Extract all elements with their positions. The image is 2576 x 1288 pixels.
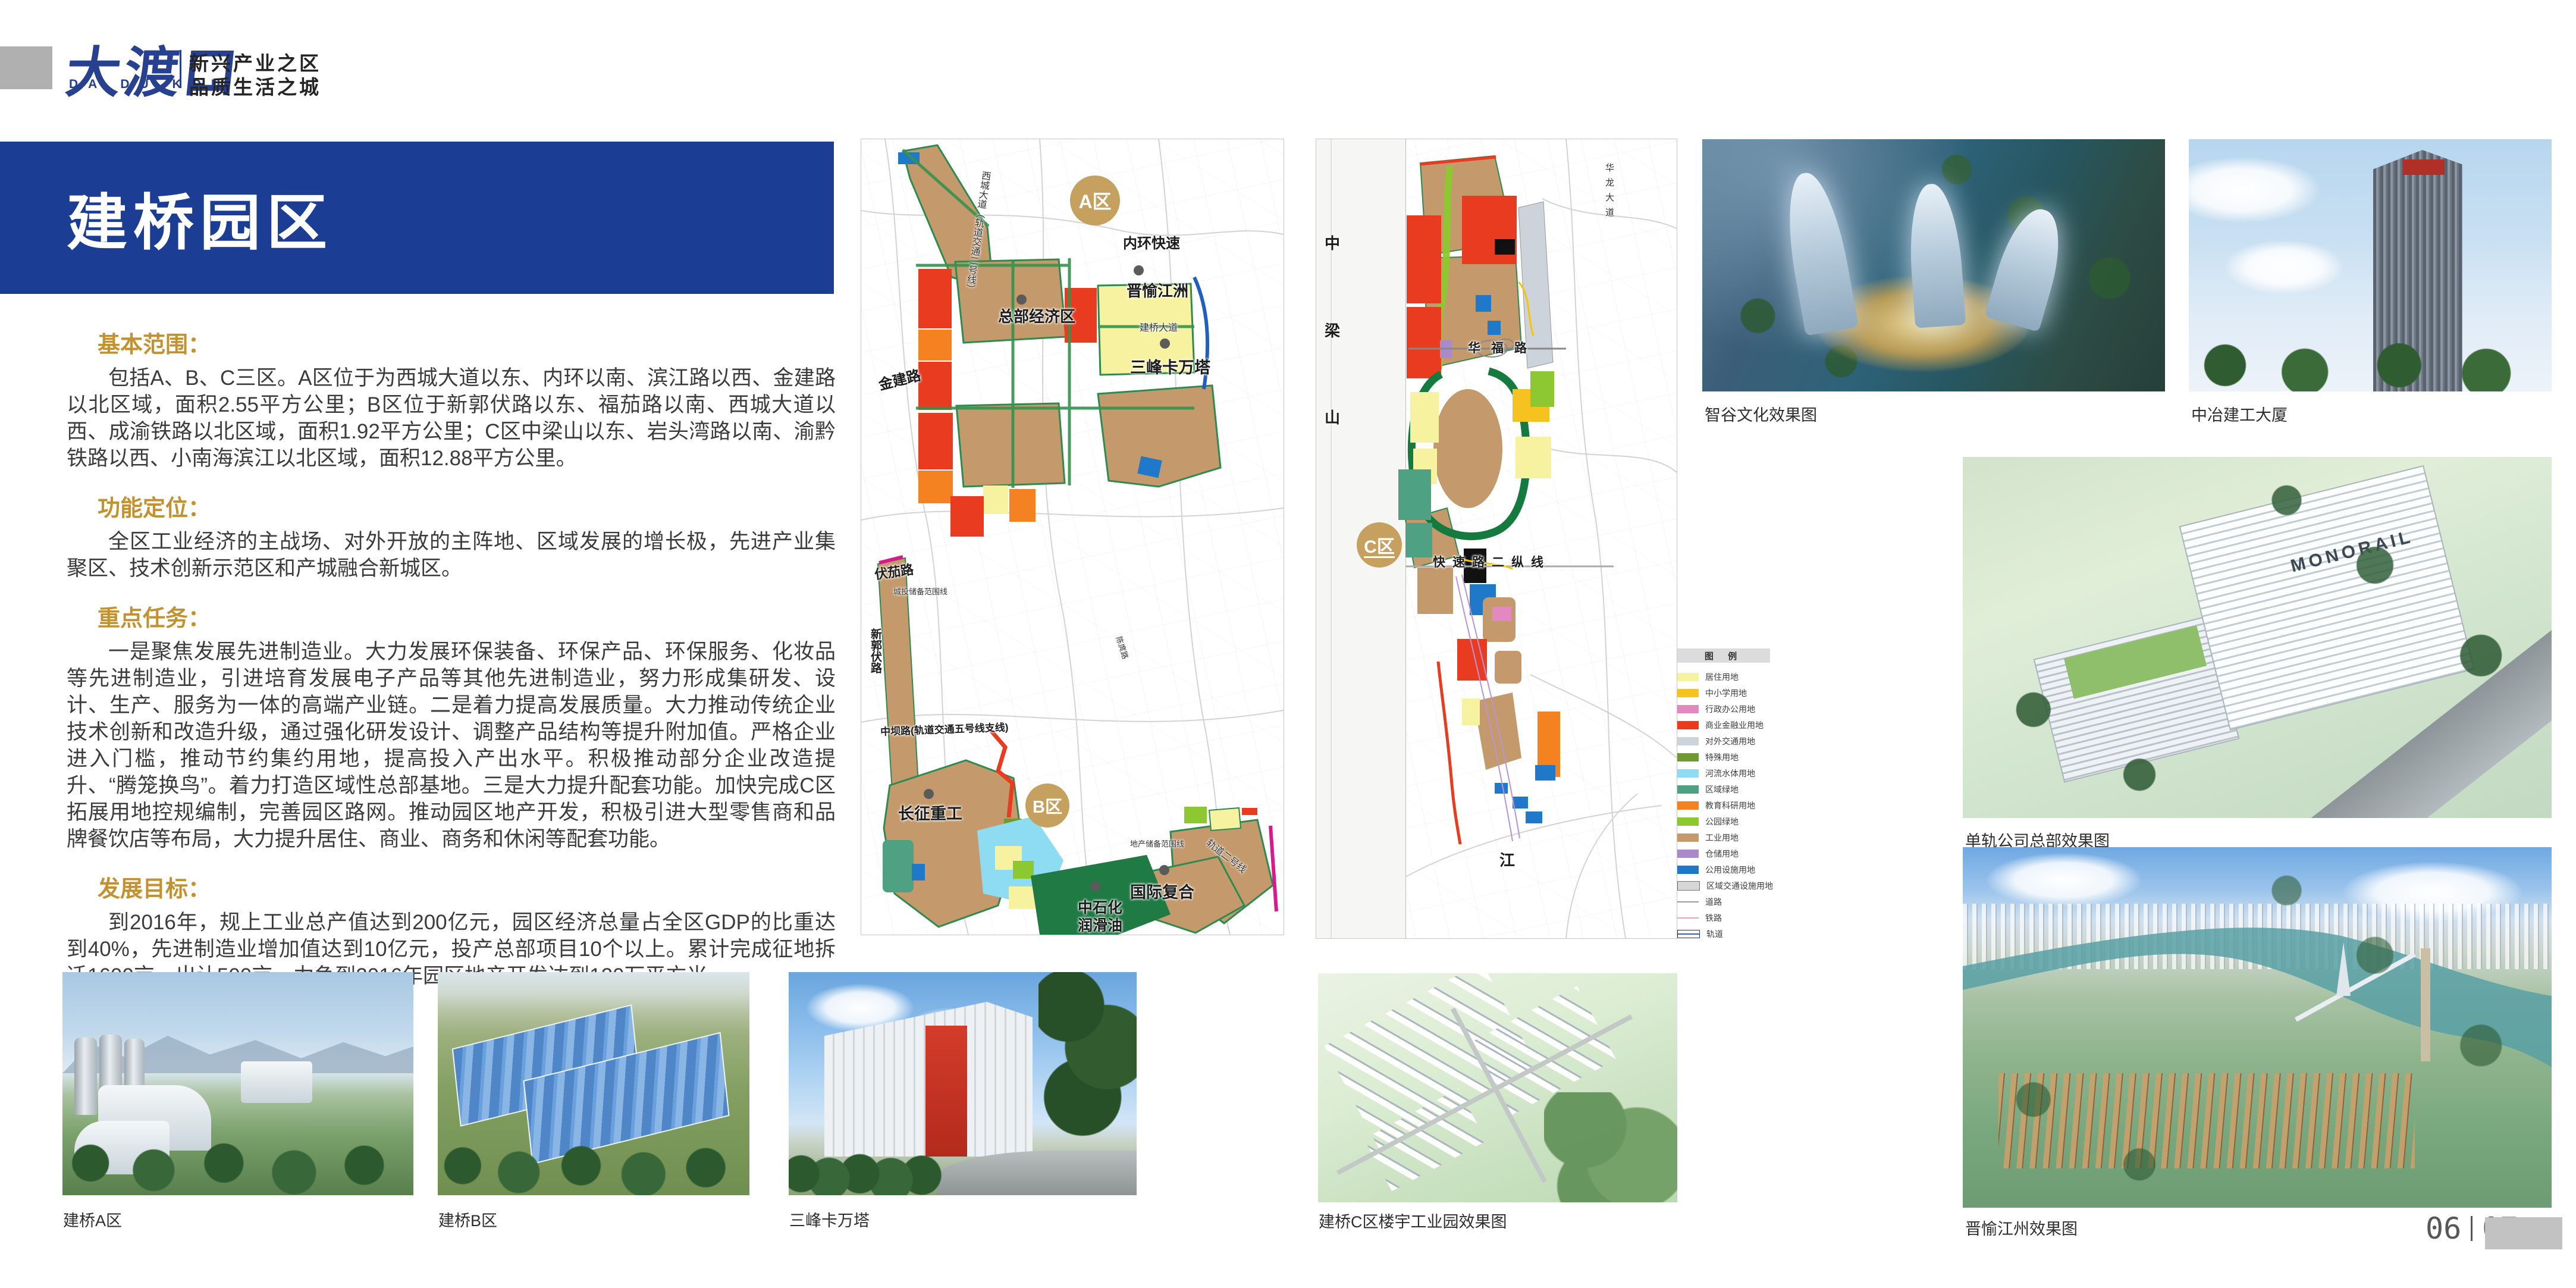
photo-trees [62, 1124, 413, 1195]
legend-swatch [1677, 866, 1699, 874]
legend-item-admin: 行政办公用地 [1677, 701, 1793, 717]
map-label-liang: 梁 [1325, 319, 1340, 341]
map-label-huafulu: 华福路 [1468, 339, 1538, 356]
section-heading-tasks: 重点任务： [98, 600, 836, 632]
caption-zone-c-park: 建桥C区楼宇工业园效果图 [1319, 1209, 1507, 1232]
legend-swatch [1677, 833, 1699, 842]
photo-silo [74, 1038, 97, 1115]
photo-forest [1544, 1092, 1677, 1202]
map-label-shan: 山 [1325, 406, 1340, 428]
map-label-chengtou-line: 城投储备范围线 [893, 585, 947, 597]
map-badge-zone-c: C区 [1357, 522, 1402, 568]
photo-trees [1963, 847, 2552, 1208]
legend-label: 行政办公用地 [1705, 703, 1755, 715]
photo-cloud [2224, 240, 2343, 294]
legend-swatch [1677, 850, 1699, 858]
legend-road-line [1677, 901, 1699, 902]
legend-item-railway: 铁路 [1677, 910, 1793, 926]
legend-item-utility: 公用设施用地 [1677, 861, 1793, 878]
caption-zhongye: 中冶建工大厦 [2191, 402, 2288, 425]
map-label-sanfeng: 三峰卡万塔 [1130, 355, 1210, 378]
map-dot-zhongshihua [1090, 881, 1100, 891]
legend-label: 对外交通用地 [1705, 735, 1755, 747]
legend-swatch [1677, 689, 1699, 697]
page-title: 建桥园区 [67, 174, 333, 262]
map-c-zone: 中 梁 山 华龙大道 华福路 C区 快速路二纵线 江 [1316, 139, 1677, 939]
map-label-guoji: 国际复合 [1130, 879, 1194, 902]
photo-trees [438, 1130, 749, 1195]
section-heading-goals: 发展目标： [98, 870, 836, 903]
legend-swatch [1677, 769, 1699, 778]
map-label-zhongshihua-2: 润滑油 [1078, 914, 1122, 935]
map-badge-zone-a: A区 [1070, 176, 1120, 225]
decor-gray-block [2485, 1217, 2562, 1249]
photo-building [241, 1061, 312, 1103]
legend-label: 教育科研用地 [1705, 800, 1755, 811]
legend-title: 图 例 [1677, 648, 1770, 663]
legend-swatch [1677, 881, 1700, 891]
photo-red-panel [925, 1026, 967, 1157]
map-legend: 图 例 居住用地 中小学用地 行政办公用地 商业金融业用地 对外交通用地 特殊用… [1677, 648, 1793, 942]
map-label-changzheng: 长征重工 [898, 801, 962, 824]
legend-label: 区域绿地 [1705, 784, 1739, 795]
photo-zone-c-park [1318, 973, 1677, 1202]
brochure-page: 大渡口 DA DU KOU 新兴产业之区 品质生活之城 建桥园区 基本范围： 包… [0, 0, 2576, 1288]
legend-item-track: 轨道 [1677, 926, 1793, 942]
photo-monorail-hq: MONORAIL [1963, 457, 2552, 818]
map-badge-zone-b: B区 [1025, 784, 1069, 828]
logo-divider [180, 50, 181, 88]
legend-item-school: 中小学用地 [1677, 685, 1793, 701]
map-label-jianqiao-dadao: 建桥大道 [1140, 319, 1178, 334]
photo-zone-a [62, 972, 413, 1195]
legend-item-park: 公园绿地 [1677, 813, 1793, 829]
section-heading-function: 功能定位： [98, 490, 836, 522]
legend-swatch [1677, 817, 1699, 826]
photo-sanfeng-building [789, 972, 1137, 1195]
caption-zhigu: 智谷文化效果图 [1705, 402, 1817, 425]
legend-item-ext-transport: 对外交通用地 [1677, 733, 1793, 749]
legend-swatch [1677, 801, 1699, 810]
legend-label: 铁路 [1705, 912, 1722, 924]
map-label-dichan-line: 地产储备范围线 [1130, 838, 1184, 849]
legend-swatch [1677, 705, 1699, 713]
legend-item-region-green: 区域绿地 [1677, 781, 1793, 797]
map-ab-zones: A区 B区 内环快速 晋愉江洲 总部经济区 三峰卡万塔 建桥大道 西城大道（轨道… [861, 139, 1284, 935]
legend-label: 商业金融业用地 [1705, 719, 1764, 731]
map-label-jiang: 江 [1499, 848, 1515, 870]
section-body-scope: 包括A、B、C三区。A区位于为西城大道以东、内环以南、滨江路以西、金建路以北区域… [67, 365, 836, 472]
legend-item-region-transport: 区域交通设施用地 [1677, 878, 1793, 894]
map-dot-sanfeng [1160, 339, 1170, 349]
map-label-hualong-dadao: 华龙大道 [1603, 163, 1615, 222]
photo-trees [1038, 972, 1137, 1139]
photo-zhigu-render [1702, 139, 2165, 391]
legend-railway-line [1677, 917, 1699, 919]
legend-item-special: 特殊用地 [1677, 749, 1793, 765]
legend-label: 公用设施用地 [1705, 864, 1755, 876]
page-number-left: 06 [2426, 1211, 2461, 1246]
photo-trees [2189, 326, 2552, 391]
legend-item-road: 道路 [1677, 894, 1793, 910]
caption-zone-b: 建桥B区 [438, 1208, 497, 1231]
map-label-zongbu: 总部经济区 [998, 305, 1075, 327]
legend-label: 河流水体用地 [1705, 767, 1755, 779]
map-label-neihuan: 内环快速 [1123, 231, 1180, 252]
photo-trees [1963, 457, 2552, 818]
photo-trees [789, 1148, 943, 1195]
article: 基本范围： 包括A、B、C三区。A区位于为西城大道以东、内环以南、滨江路以西、金… [67, 326, 836, 989]
legend-item-water: 河流水体用地 [1677, 765, 1793, 781]
caption-zone-a: 建桥A区 [63, 1208, 122, 1231]
legend-item-education: 教育科研用地 [1677, 797, 1793, 813]
photo-road [937, 1151, 1137, 1195]
map-dot-jinyu [1134, 265, 1144, 275]
section-heading-scope: 基本范围： [98, 326, 836, 359]
map-label-kuaisulu: 快速路二纵线 [1433, 553, 1551, 571]
photo-cloud [2189, 157, 2320, 222]
map-label-xinguofulu: 新郭伏路 [867, 628, 883, 673]
legend-swatch [1677, 673, 1699, 681]
photo-zhongye-tower [2189, 139, 2552, 391]
section-banner: 建桥园区 [0, 142, 834, 294]
page-number-divider [2471, 1216, 2473, 1241]
brand-tagline-2: 品质生活之城 [189, 71, 321, 100]
legend-label: 居住用地 [1705, 671, 1739, 683]
legend-label: 工业用地 [1705, 832, 1739, 844]
legend-item-commercial: 商业金融业用地 [1677, 717, 1793, 733]
legend-swatch [1677, 721, 1699, 729]
legend-label: 区域交通设施用地 [1706, 880, 1773, 892]
caption-sanfeng: 三峰卡万塔 [789, 1208, 870, 1231]
legend-label: 轨道 [1706, 928, 1723, 940]
map-label-zhong: 中 [1325, 231, 1340, 253]
map-dot-zongbu [1016, 294, 1027, 305]
photo-jiangzhou-render [1963, 847, 2552, 1208]
map-badge-zone-c-text: C区 [1364, 532, 1395, 558]
legend-item-residential: 居住用地 [1677, 669, 1793, 685]
photo-zone-b [438, 972, 749, 1195]
legend-label: 中小学用地 [1705, 687, 1747, 699]
section-body-tasks: 一是聚焦发展先进制造业。大力发展环保装备、环保产品、环保服务、化妆品等先进制造业… [67, 638, 836, 853]
section-body-function: 全区工业经济的主战场、对外开放的主阵地、区域发展的增长极，先进产业集聚区、技术创… [67, 528, 836, 582]
legend-swatch [1677, 753, 1699, 761]
decor-gray-tab [0, 46, 52, 89]
map-label-jinyu: 晋愉江洲 [1127, 279, 1188, 301]
legend-label: 公园绿地 [1705, 816, 1739, 828]
legend-track-symbol [1677, 930, 1700, 938]
legend-label: 仓储用地 [1705, 848, 1739, 860]
photo-tower-sign [2403, 159, 2445, 175]
legend-label: 特殊用地 [1705, 751, 1739, 763]
caption-jiangzhou: 晋愉江州效果图 [1965, 1216, 2078, 1239]
legend-item-storage: 仓储用地 [1677, 845, 1793, 861]
map-dot-changzheng [924, 789, 934, 799]
map-dot-guoji [1159, 865, 1169, 875]
legend-label: 道路 [1705, 896, 1722, 908]
legend-item-industrial: 工业用地 [1677, 829, 1793, 845]
legend-swatch [1677, 737, 1699, 745]
legend-swatch [1677, 785, 1699, 794]
